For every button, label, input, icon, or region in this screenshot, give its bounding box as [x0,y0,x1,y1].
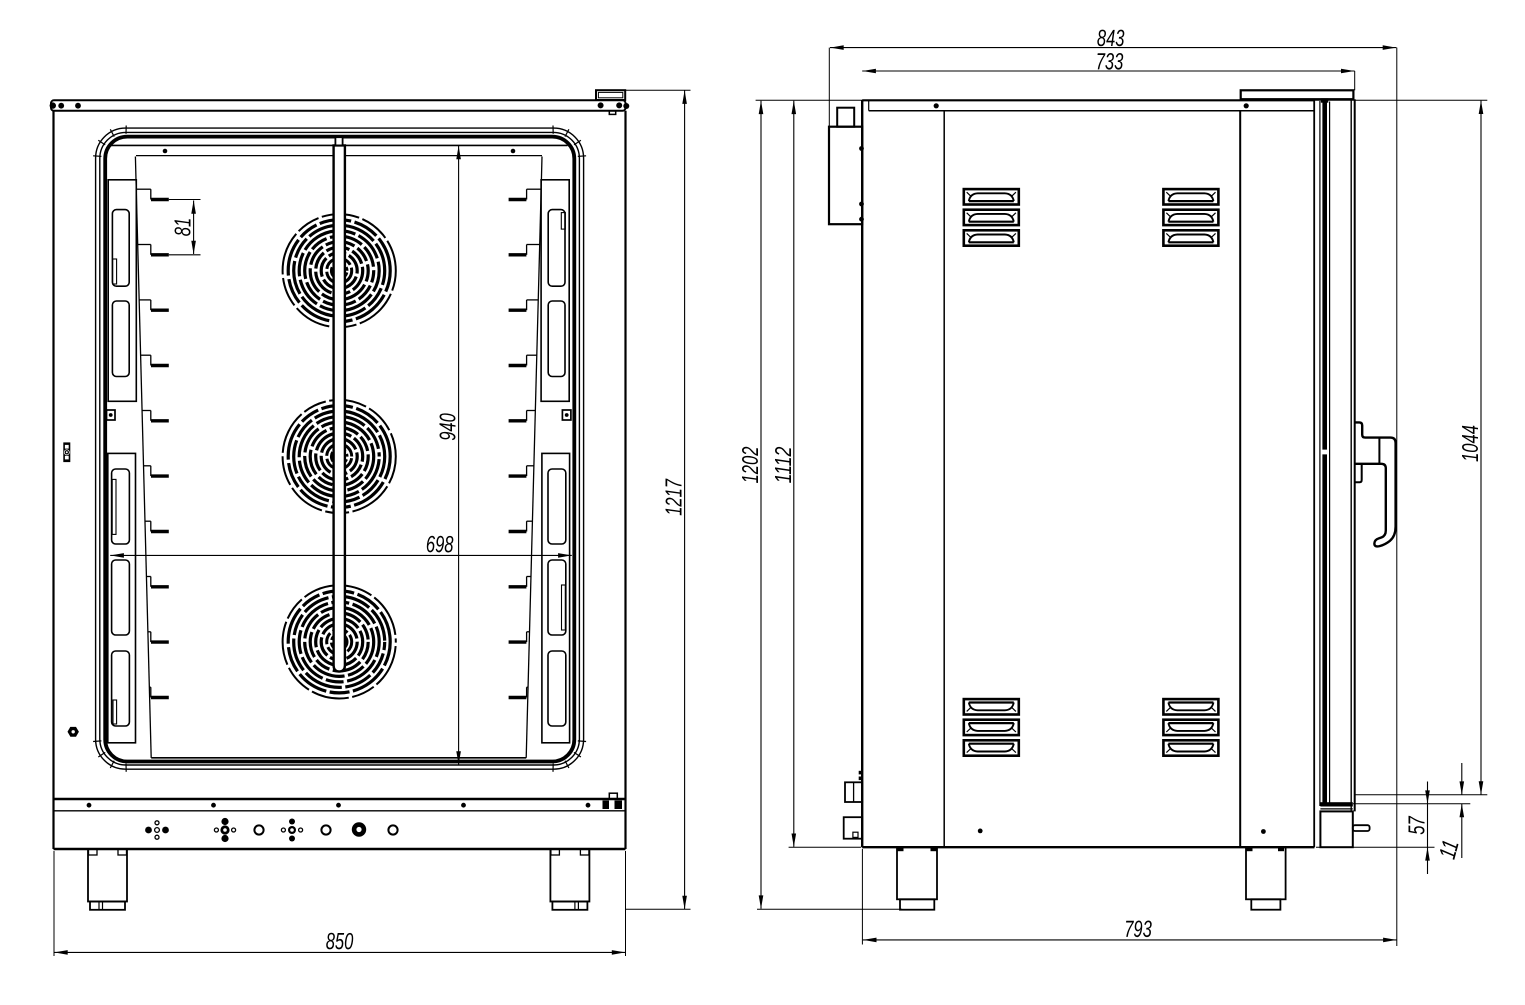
svg-text:793: 793 [1124,916,1152,942]
svg-text:57: 57 [1404,816,1430,835]
svg-text:843: 843 [1097,25,1125,51]
svg-text:1112: 1112 [770,447,796,484]
svg-text:733: 733 [1096,48,1124,74]
svg-text:81: 81 [170,218,196,236]
svg-text:1044: 1044 [1457,425,1483,462]
svg-text:940: 940 [435,413,461,441]
svg-text:698: 698 [426,531,454,557]
svg-text:850: 850 [326,928,354,954]
svg-text:1217: 1217 [660,478,686,515]
svg-text:1202: 1202 [737,447,763,484]
